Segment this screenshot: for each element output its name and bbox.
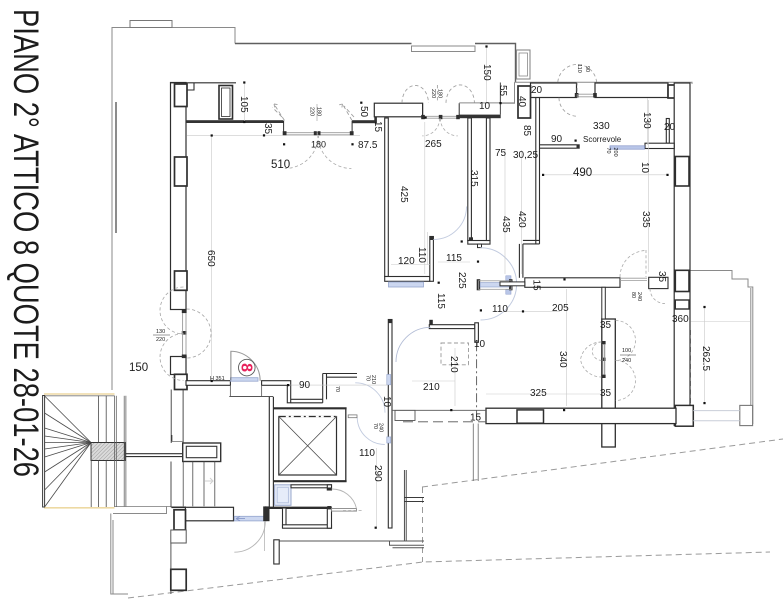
svg-text:210: 210: [423, 382, 440, 393]
svg-text:105: 105: [238, 96, 249, 113]
svg-text:490: 490: [573, 167, 592, 179]
svg-text:75: 75: [495, 148, 507, 159]
svg-text:35: 35: [600, 388, 612, 399]
svg-text:35: 35: [600, 320, 612, 331]
svg-text:210: 210: [370, 375, 376, 384]
svg-text:240: 240: [622, 358, 631, 364]
svg-text:100: 100: [622, 348, 631, 354]
svg-text:115: 115: [446, 253, 462, 264]
svg-text:220: 220: [309, 107, 315, 116]
svg-text:330: 330: [593, 121, 610, 132]
svg-text:265: 265: [425, 139, 442, 150]
svg-text:650: 650: [205, 250, 216, 267]
svg-text:425: 425: [398, 186, 409, 203]
svg-text:130: 130: [641, 112, 652, 129]
svg-text:20: 20: [664, 122, 676, 133]
svg-text:240: 240: [378, 423, 384, 432]
svg-text:90: 90: [551, 134, 563, 145]
svg-text:20: 20: [531, 85, 543, 96]
svg-text:180: 180: [316, 107, 322, 116]
svg-text:120: 120: [398, 256, 415, 267]
svg-text:90: 90: [299, 380, 311, 391]
svg-text:435: 435: [500, 216, 511, 233]
svg-text:110: 110: [492, 304, 508, 315]
svg-text:40: 40: [516, 96, 527, 108]
svg-text:225: 225: [456, 272, 467, 289]
svg-text:360: 360: [672, 314, 689, 325]
svg-text:8: 8: [237, 363, 254, 372]
svg-text:85: 85: [521, 125, 532, 137]
svg-text:200: 200: [612, 148, 618, 157]
svg-text:15: 15: [470, 413, 482, 424]
svg-text:35: 35: [656, 271, 667, 283]
svg-text:10: 10: [381, 396, 392, 408]
svg-text:87.5: 87.5: [358, 140, 378, 151]
svg-text:220: 220: [430, 89, 436, 98]
svg-text:30,25: 30,25: [513, 150, 538, 161]
svg-text:262.5: 262.5: [700, 346, 711, 371]
svg-text:55: 55: [497, 85, 508, 97]
svg-text:70: 70: [365, 375, 371, 381]
svg-text:10: 10: [479, 101, 491, 112]
svg-text:150: 150: [481, 64, 492, 81]
svg-text:240: 240: [636, 292, 642, 301]
svg-text:70: 70: [605, 148, 611, 154]
svg-text:Scorrevole: Scorrevole: [583, 135, 622, 144]
svg-text:PIANO 2° ATTICO 8 QUOTE 28-01-: PIANO 2° ATTICO 8 QUOTE 28-01-26: [6, 9, 45, 477]
svg-text:50: 50: [358, 106, 369, 118]
svg-text:180: 180: [437, 89, 443, 98]
svg-text:210: 210: [448, 356, 459, 373]
svg-text:220: 220: [156, 337, 165, 343]
svg-text:290: 290: [372, 465, 383, 482]
svg-text:10: 10: [474, 339, 486, 350]
svg-text:80: 80: [630, 292, 636, 298]
svg-text:180: 180: [311, 140, 326, 150]
svg-text:15: 15: [372, 121, 383, 133]
svg-text:420: 420: [516, 211, 527, 228]
svg-text:10: 10: [639, 162, 650, 174]
svg-text:70: 70: [372, 423, 378, 429]
svg-text:340: 340: [557, 351, 568, 368]
svg-text:115: 115: [435, 293, 446, 309]
svg-text:510: 510: [271, 159, 290, 171]
svg-text:110: 110: [576, 64, 582, 73]
svg-text:35: 35: [262, 123, 273, 135]
svg-text:70: 70: [334, 386, 340, 392]
svg-text:150: 150: [129, 362, 148, 374]
svg-text:110: 110: [416, 247, 427, 263]
svg-text:90: 90: [584, 66, 590, 72]
svg-text:H 351: H 351: [210, 376, 225, 382]
svg-text:325: 325: [530, 388, 547, 399]
svg-text:335: 335: [640, 211, 651, 228]
svg-text:15: 15: [531, 280, 542, 292]
svg-text:130: 130: [156, 329, 165, 335]
svg-text:110: 110: [359, 448, 375, 459]
svg-text:205: 205: [552, 303, 569, 314]
svg-text:315: 315: [468, 170, 479, 187]
